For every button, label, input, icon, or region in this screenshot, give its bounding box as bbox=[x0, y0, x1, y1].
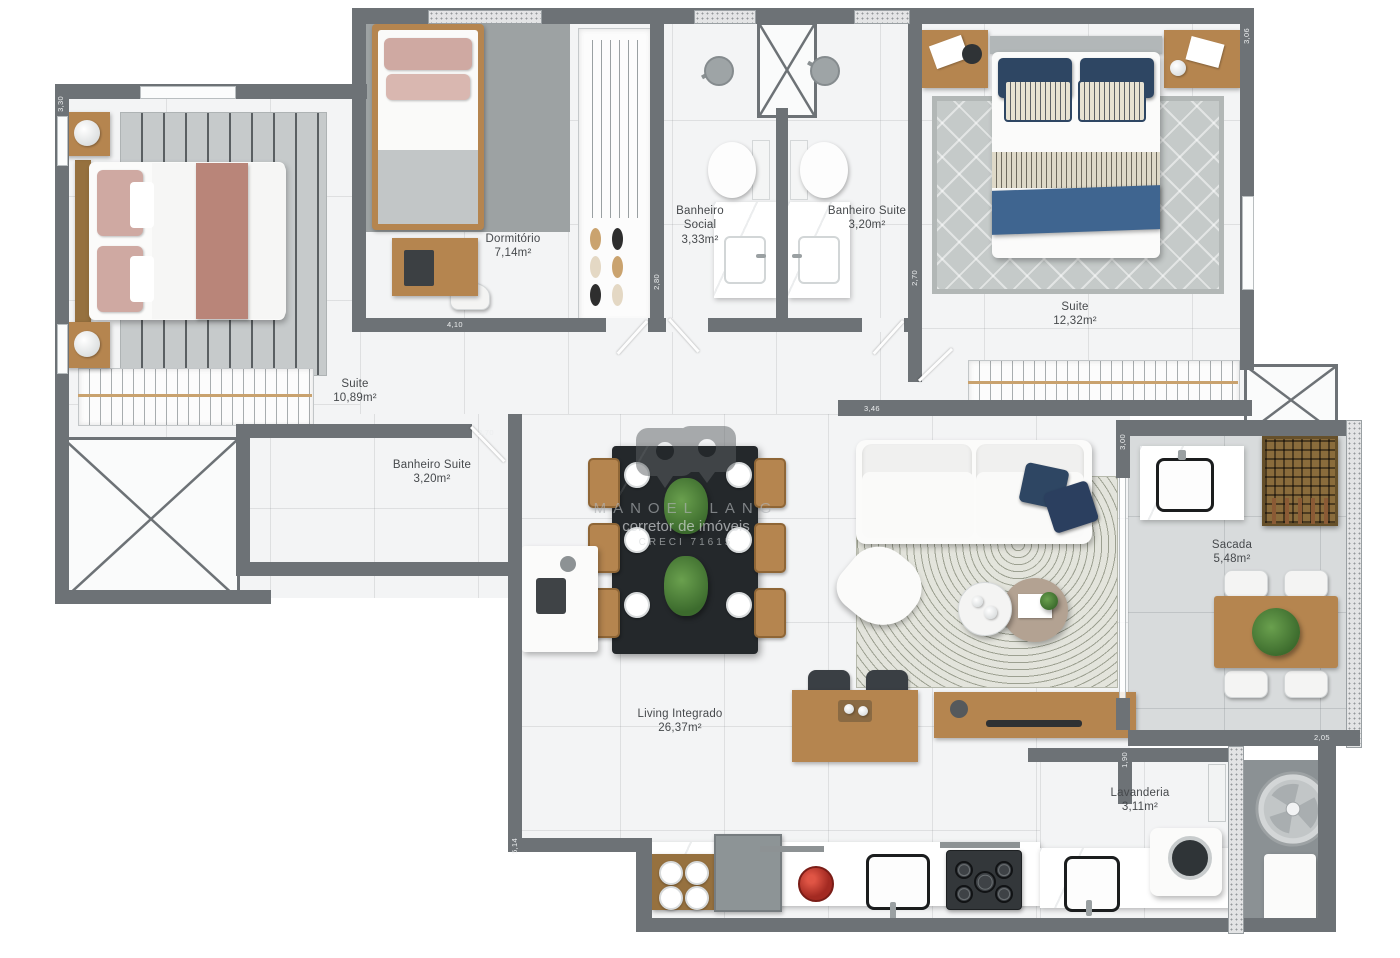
laptop bbox=[404, 250, 434, 286]
shower-head bbox=[704, 56, 734, 86]
wall bbox=[352, 8, 366, 332]
x-cross-icon bbox=[65, 440, 237, 598]
coffee-machine bbox=[536, 578, 566, 614]
skewer bbox=[1298, 498, 1302, 524]
skewer bbox=[1324, 498, 1328, 524]
balcony-sink bbox=[1156, 458, 1214, 512]
centerpiece-plant bbox=[664, 556, 708, 616]
balcony-chair bbox=[1224, 670, 1268, 698]
faucet bbox=[756, 254, 766, 258]
jar bbox=[560, 556, 576, 572]
bathroom-sink bbox=[798, 236, 840, 284]
utility-cabinet bbox=[1264, 854, 1316, 922]
wall bbox=[508, 414, 522, 562]
vent-shaft bbox=[757, 22, 817, 118]
room-area: 12,32m² bbox=[1015, 314, 1135, 328]
wardrobe-rail bbox=[968, 381, 1238, 384]
room-area: 3,33m² bbox=[660, 233, 740, 247]
shoe bbox=[612, 228, 623, 250]
shoe bbox=[590, 256, 601, 278]
laundry-cabinet bbox=[1208, 764, 1226, 822]
wall bbox=[1228, 746, 1244, 934]
shoe bbox=[590, 228, 601, 250]
bed-runner bbox=[992, 152, 1160, 188]
plate bbox=[685, 861, 709, 885]
window bbox=[57, 116, 68, 166]
dining-chair bbox=[754, 458, 786, 508]
room-label-lavanderia: Lavanderia 3,11m² bbox=[1080, 786, 1200, 815]
lamp bbox=[74, 120, 100, 146]
cup bbox=[844, 704, 854, 714]
room-name: Suite bbox=[1015, 300, 1135, 314]
plate bbox=[726, 527, 752, 553]
plate bbox=[659, 886, 683, 910]
washer-door bbox=[1168, 836, 1212, 880]
dining-chair bbox=[754, 588, 786, 638]
wall bbox=[1240, 8, 1254, 370]
bed-throw bbox=[196, 163, 248, 319]
window bbox=[57, 324, 68, 374]
room-label-banheiro-suite-left: Banheiro Suite 3,20m² bbox=[390, 458, 474, 487]
cup bbox=[984, 606, 997, 619]
x-cross-icon bbox=[760, 25, 814, 115]
closet-hangers bbox=[584, 40, 644, 218]
dimension-label: 1,90 bbox=[1120, 752, 1129, 768]
laundry-sink bbox=[1064, 856, 1120, 912]
page-background bbox=[508, 852, 636, 928]
dining-chair bbox=[754, 523, 786, 573]
wardrobe-rail bbox=[78, 394, 312, 397]
bed-throw bbox=[992, 185, 1160, 235]
wall bbox=[838, 400, 1252, 416]
window bbox=[1242, 196, 1254, 290]
wall bbox=[236, 424, 250, 576]
pillow bbox=[384, 38, 472, 70]
dimension-label: 2,05 bbox=[1314, 733, 1330, 742]
shower-head bbox=[810, 56, 840, 86]
shoe bbox=[590, 284, 601, 306]
burner bbox=[955, 885, 973, 903]
plate bbox=[624, 592, 650, 618]
window bbox=[694, 10, 756, 24]
speaker bbox=[950, 700, 968, 718]
burner bbox=[995, 885, 1013, 903]
elevator-shaft bbox=[62, 437, 240, 601]
balcony-chair bbox=[1284, 570, 1328, 598]
toilet bbox=[708, 142, 756, 198]
room-name: Dormitório bbox=[453, 232, 573, 246]
room-name: Banheiro Suite bbox=[827, 204, 907, 218]
window bbox=[428, 10, 542, 24]
wall bbox=[1116, 698, 1130, 730]
wardrobe-left-suite bbox=[78, 368, 314, 426]
room-name: Lavanderia bbox=[1080, 786, 1200, 800]
fruit-bowl bbox=[798, 866, 834, 902]
room-name: Suite bbox=[295, 377, 415, 391]
sofa-seat bbox=[862, 472, 974, 538]
sliding-glass-door bbox=[1119, 478, 1126, 698]
room-name: Sacada bbox=[1172, 538, 1292, 552]
dimension-label: 2,80 bbox=[652, 274, 661, 290]
plate bbox=[685, 886, 709, 910]
wall-window-balcony bbox=[1346, 420, 1362, 748]
wall bbox=[908, 318, 922, 382]
lamp bbox=[74, 331, 100, 357]
plate bbox=[624, 462, 650, 488]
room-name: Living Integrado bbox=[600, 707, 760, 721]
burner bbox=[995, 861, 1013, 879]
room-area: 26,37m² bbox=[600, 721, 760, 735]
dimension-label: 3,30 bbox=[56, 96, 65, 112]
dimension-label: 5,14 bbox=[510, 838, 519, 854]
pillow bbox=[130, 182, 154, 228]
room-area: 7,14m² bbox=[453, 246, 573, 260]
room-area: 10,89m² bbox=[295, 391, 415, 405]
shoe bbox=[612, 256, 623, 278]
dimension-label: 2,70 bbox=[910, 270, 919, 286]
soundbar bbox=[986, 720, 1082, 727]
room-area: 3,20m² bbox=[827, 218, 907, 232]
wall bbox=[55, 590, 271, 604]
cooktop bbox=[946, 850, 1022, 910]
dining-chair bbox=[588, 458, 620, 508]
wall bbox=[1028, 748, 1244, 762]
faucet bbox=[792, 254, 802, 258]
table-plant bbox=[1252, 608, 1300, 656]
wall bbox=[1318, 745, 1336, 932]
wall bbox=[1128, 420, 1348, 436]
dimension-label: 3,46 bbox=[864, 404, 880, 413]
room-name: Banheiro Social bbox=[660, 204, 740, 233]
wall-shelf bbox=[760, 846, 824, 852]
centerpiece-plant bbox=[664, 478, 708, 534]
pillow bbox=[1078, 80, 1146, 122]
balcony-chair bbox=[1224, 570, 1268, 598]
wall bbox=[508, 838, 650, 852]
cup bbox=[858, 706, 868, 716]
plate bbox=[726, 592, 752, 618]
room-label-living: Living Integrado 26,37m² bbox=[600, 707, 760, 736]
plant-small bbox=[1040, 592, 1058, 610]
window bbox=[854, 10, 910, 24]
plate bbox=[624, 527, 650, 553]
cup bbox=[972, 596, 983, 607]
wall bbox=[236, 562, 522, 576]
wall bbox=[776, 108, 788, 332]
plate bbox=[726, 462, 752, 488]
pillow bbox=[130, 256, 154, 302]
room-area: 5,48m² bbox=[1172, 552, 1292, 566]
dimension-label: 2,70 bbox=[478, 428, 494, 437]
pillow bbox=[386, 74, 470, 100]
toilet bbox=[800, 142, 848, 198]
burner bbox=[955, 861, 973, 879]
balcony-chair bbox=[1284, 670, 1328, 698]
room-area: 3,20m² bbox=[390, 472, 474, 486]
window bbox=[140, 86, 236, 99]
dimension-label: 4,10 bbox=[447, 320, 463, 329]
kitchen-sink bbox=[866, 854, 930, 910]
burner bbox=[974, 871, 996, 893]
room-label-suite-right: Suite 12,32m² bbox=[1015, 300, 1135, 329]
wall-shelf bbox=[940, 842, 1020, 848]
dimension-label: 3,00 bbox=[1118, 434, 1127, 450]
shoe bbox=[612, 284, 623, 306]
room-label-banheiro-social: Banheiro Social 3,33m² bbox=[660, 204, 740, 247]
room-label-sacada: Sacada 5,48m² bbox=[1172, 538, 1292, 567]
room-label-banheiro-suite-top: Banheiro Suite 3,20m² bbox=[827, 204, 907, 233]
dimension-label: 3,06 bbox=[1242, 28, 1251, 44]
faucet bbox=[1086, 900, 1092, 916]
room-name: Banheiro Suite bbox=[390, 458, 474, 472]
wall bbox=[508, 562, 522, 852]
lamp bbox=[962, 44, 982, 64]
pillow bbox=[1004, 80, 1072, 122]
cup bbox=[1170, 60, 1186, 76]
skewer bbox=[1285, 498, 1289, 524]
faucet bbox=[1178, 450, 1186, 460]
room-label-suite-left: Suite 10,89m² bbox=[295, 377, 415, 406]
wall bbox=[236, 424, 472, 438]
skewer bbox=[1311, 498, 1315, 524]
skewer bbox=[1272, 498, 1276, 524]
room-label-dormitorio: Dormitório 7,14m² bbox=[453, 232, 573, 261]
room-area: 3,11m² bbox=[1080, 800, 1200, 814]
plate bbox=[659, 861, 683, 885]
floor-plan: Dormitório 7,14m² Banheiro Social 3,33m²… bbox=[0, 0, 1400, 958]
blanket bbox=[378, 150, 478, 224]
